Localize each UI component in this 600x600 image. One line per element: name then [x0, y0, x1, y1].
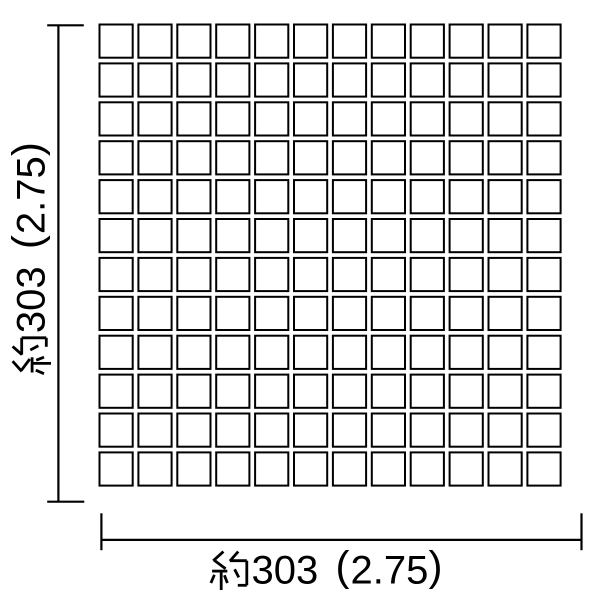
svg-text:): )	[429, 543, 443, 590]
svg-text:303: 303	[10, 266, 54, 333]
svg-text:(: (	[336, 543, 350, 590]
svg-text:): )	[4, 142, 51, 156]
svg-text:303: 303	[252, 549, 319, 593]
svg-text:2.75: 2.75	[351, 549, 429, 593]
svg-text:(: (	[4, 235, 51, 249]
svg-text:2.75: 2.75	[10, 156, 54, 234]
